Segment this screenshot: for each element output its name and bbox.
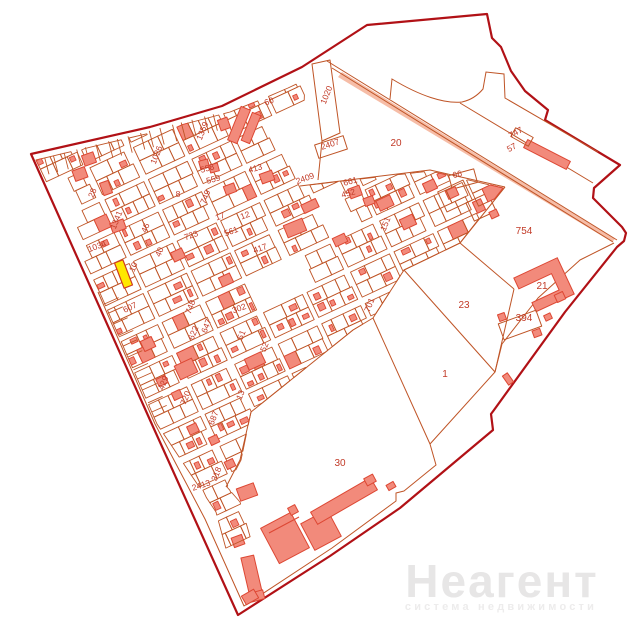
svg-text:30: 30	[334, 458, 346, 469]
svg-text:21: 21	[536, 281, 548, 292]
svg-text:Неагент: Неагент	[405, 555, 598, 607]
svg-text:23: 23	[458, 300, 470, 311]
svg-text:8: 8	[176, 189, 181, 199]
svg-text:754: 754	[516, 226, 533, 237]
svg-text:394: 394	[516, 313, 533, 324]
svg-text:система недвижимости: система недвижимости	[405, 601, 597, 613]
svg-text:1: 1	[442, 369, 448, 380]
svg-text:20: 20	[390, 138, 402, 149]
